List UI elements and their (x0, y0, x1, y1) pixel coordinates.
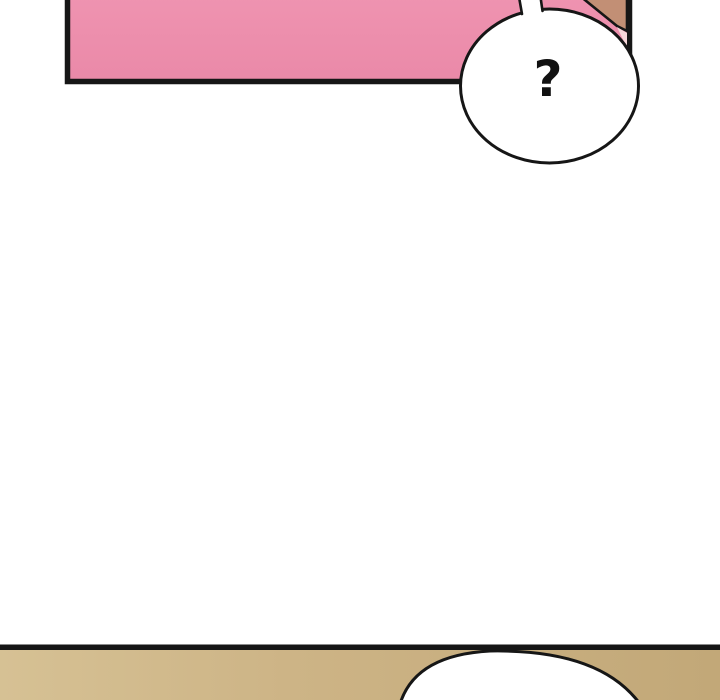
question-mark-text: ? (533, 50, 562, 108)
speech-bubble-tail (521, 0, 542, 22)
comic-page: ? (0, 0, 720, 700)
comic-artwork: ? (0, 0, 720, 700)
bottom-panel-border (0, 645, 720, 651)
